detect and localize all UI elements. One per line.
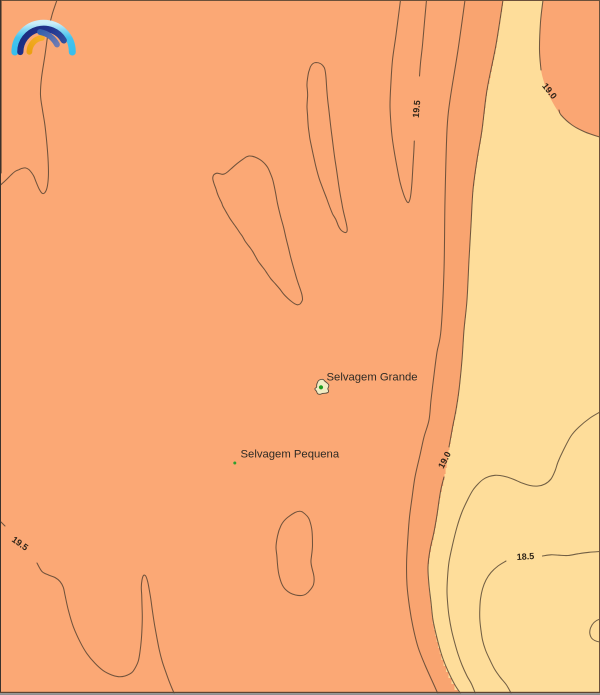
svg-text:19.5: 19.5 (411, 100, 422, 118)
svg-text:Selvagem Grande: Selvagem Grande (327, 372, 418, 384)
svg-text:Selvagem Pequena: Selvagem Pequena (241, 449, 340, 461)
svg-text:18.5: 18.5 (516, 551, 534, 562)
